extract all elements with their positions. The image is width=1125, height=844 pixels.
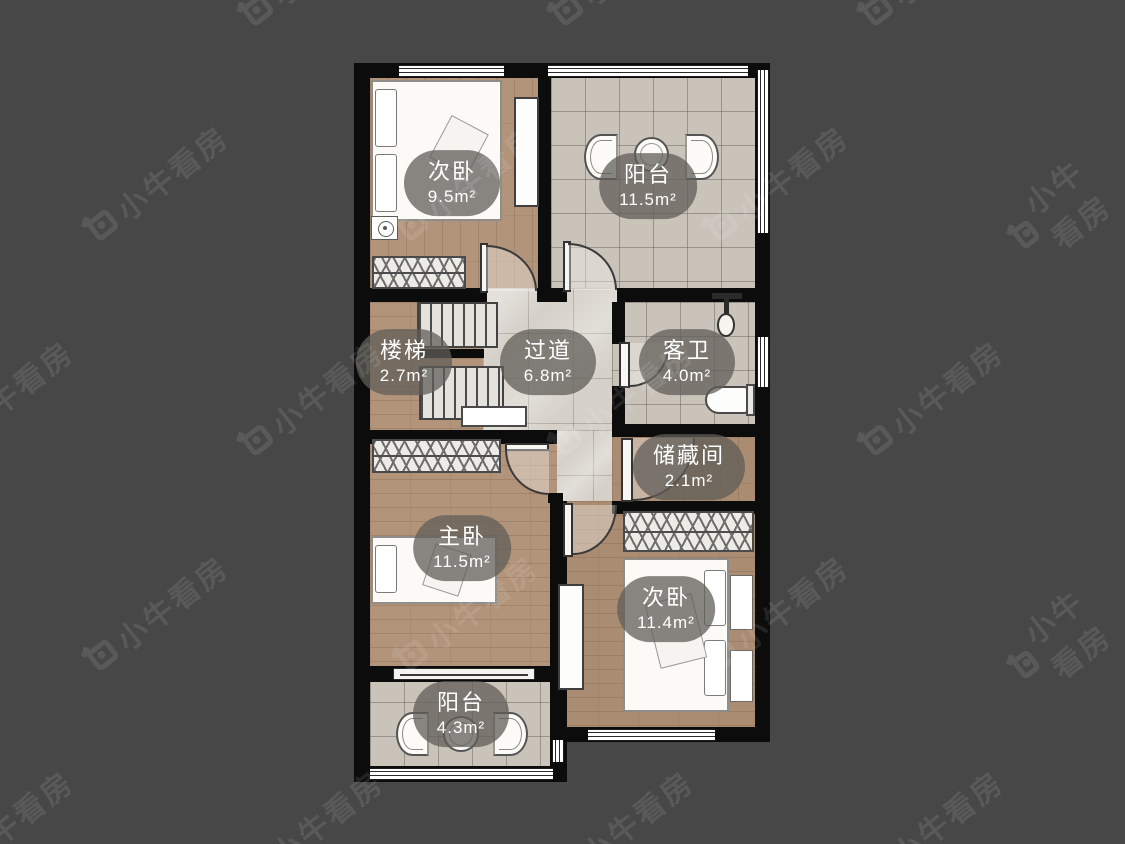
window-panel-bedroom-bottom — [558, 584, 584, 690]
watermark: 小牛看房 — [1113, 803, 1125, 844]
watermark-text: 小牛看房 — [571, 759, 702, 844]
room-name: 过道 — [524, 338, 572, 363]
label-storage: 储藏间 2.1m² — [633, 434, 745, 500]
watermark: 小牛看房 — [0, 329, 82, 466]
watermark-text: 小牛看房 — [106, 114, 237, 230]
window-balcony-top — [548, 65, 748, 77]
room-area: 11.5m² — [619, 190, 677, 210]
room-name: 楼梯 — [380, 338, 428, 363]
room-area: 2.1m² — [665, 471, 713, 491]
watermark: 小牛看房 — [1113, 0, 1125, 123]
bull-logo-icon — [240, 423, 275, 458]
wall-mid-band-c — [617, 288, 770, 302]
wardrobe-bedroom-bottom — [623, 511, 754, 552]
bull-logo-icon — [85, 638, 120, 673]
wardrobe-master — [372, 439, 501, 473]
window-balcony-bottom — [370, 768, 553, 780]
room-area: 2.7m² — [380, 366, 428, 386]
window-balcony-right — [757, 70, 769, 233]
room-area: 4.0m² — [663, 366, 711, 386]
door-bedroom-bottom-leaf — [563, 503, 573, 557]
watermark: 小牛看房 — [234, 0, 392, 35]
watermark: 小牛看房 — [854, 329, 1012, 466]
pillow — [375, 154, 397, 212]
door-bathroom-leaf — [619, 342, 630, 388]
watermark-text: 小牛看房 — [0, 759, 82, 844]
label-balcony-top: 阳台 11.5m² — [599, 153, 697, 219]
bull-logo-icon — [550, 0, 585, 28]
watermark: 小牛看房 — [544, 759, 702, 844]
room-area: 11.5m² — [433, 552, 491, 572]
room-area: 6.8m² — [524, 366, 572, 386]
room-name: 阳台 — [624, 162, 672, 187]
label-master-bedroom: 主卧 11.5m² — [413, 515, 511, 581]
door-storage-leaf — [621, 438, 633, 502]
watermark-text: 小牛看房 — [261, 0, 392, 15]
watermark: 小牛看房 — [854, 759, 1012, 844]
nightstand — [730, 650, 753, 702]
wardrobe-bedroom-top — [372, 256, 466, 289]
watermark: 小牛看房 — [0, 759, 82, 844]
room-area: 9.5m² — [428, 187, 476, 207]
watermark-text: 小牛看房 — [1014, 132, 1125, 257]
label-bedroom-bottom: 次卧 11.4m² — [617, 576, 715, 642]
watermark: 小牛看房 — [854, 0, 1012, 35]
watermark-text: 小牛看房 — [881, 759, 1012, 844]
bull-logo-icon — [1010, 219, 1041, 251]
compass-icon — [371, 216, 398, 240]
watermark: 小牛看房 — [79, 114, 237, 251]
bull-logo-icon — [860, 423, 895, 458]
label-hallway: 过道 6.8m² — [500, 329, 596, 395]
watermark: 小牛看房 — [79, 544, 237, 681]
wall-bedroom-balcony-divider — [538, 63, 551, 302]
room-name: 次卧 — [642, 585, 690, 610]
watermark: 小牛看房 — [0, 0, 82, 35]
window-corridor-small — [552, 740, 564, 762]
room-name: 阳台 — [437, 690, 485, 715]
tv-panel-bedroom-top — [514, 97, 539, 207]
stairs-platform — [461, 406, 527, 427]
bull-logo-icon — [860, 0, 895, 28]
bull-logo-icon — [1010, 649, 1041, 681]
wall-hall-bath-a — [612, 302, 625, 344]
watermark-text: 小牛看房 — [1014, 562, 1125, 687]
room-name: 储藏间 — [653, 443, 725, 468]
floor-plan: 次卧 9.5m² 阳台 11.5m² 楼梯 2.7m² 过道 6.8m² 客卫 … — [0, 0, 1125, 844]
wall-hall-bath-b — [612, 386, 625, 426]
wall-mid-band-a — [354, 288, 487, 302]
watermark: 小牛看房 — [991, 132, 1125, 275]
watermark-text: 小牛看房 — [571, 0, 702, 15]
watermark-text: 小牛看房 — [881, 0, 1012, 15]
label-balcony-bottom: 阳台 4.3m² — [413, 681, 509, 747]
room-name: 次卧 — [428, 159, 476, 184]
room-area: 4.3m² — [437, 718, 485, 738]
watermark-text: 小牛看房 — [0, 0, 82, 15]
pillow — [375, 545, 397, 593]
window-bathroom-right — [757, 337, 769, 387]
window-bedroom-bottom — [588, 729, 715, 741]
nightstand — [730, 575, 753, 630]
watermark: 小牛看房 — [1113, 373, 1125, 553]
watermark: 小牛看房 — [544, 0, 702, 35]
bull-logo-icon — [240, 0, 275, 28]
sliding-door-master-balcony — [393, 668, 535, 680]
window-bedroom-top — [399, 65, 504, 77]
watermark-text: 小牛看房 — [881, 329, 1012, 445]
label-bedroom-top: 次卧 9.5m² — [404, 150, 500, 216]
room-name: 客卫 — [663, 338, 711, 363]
room-name: 主卧 — [438, 524, 486, 549]
bull-logo-icon — [85, 208, 120, 243]
pillow — [375, 89, 397, 147]
label-stairs: 楼梯 2.7m² — [356, 329, 452, 395]
label-guest-bathroom: 客卫 4.0m² — [639, 329, 735, 395]
room-area: 11.4m² — [637, 613, 695, 633]
pillow — [704, 640, 726, 696]
watermark-text: 小牛看房 — [0, 329, 82, 445]
watermark: 小牛看房 — [991, 562, 1125, 705]
watermark-text: 小牛看房 — [106, 544, 237, 660]
